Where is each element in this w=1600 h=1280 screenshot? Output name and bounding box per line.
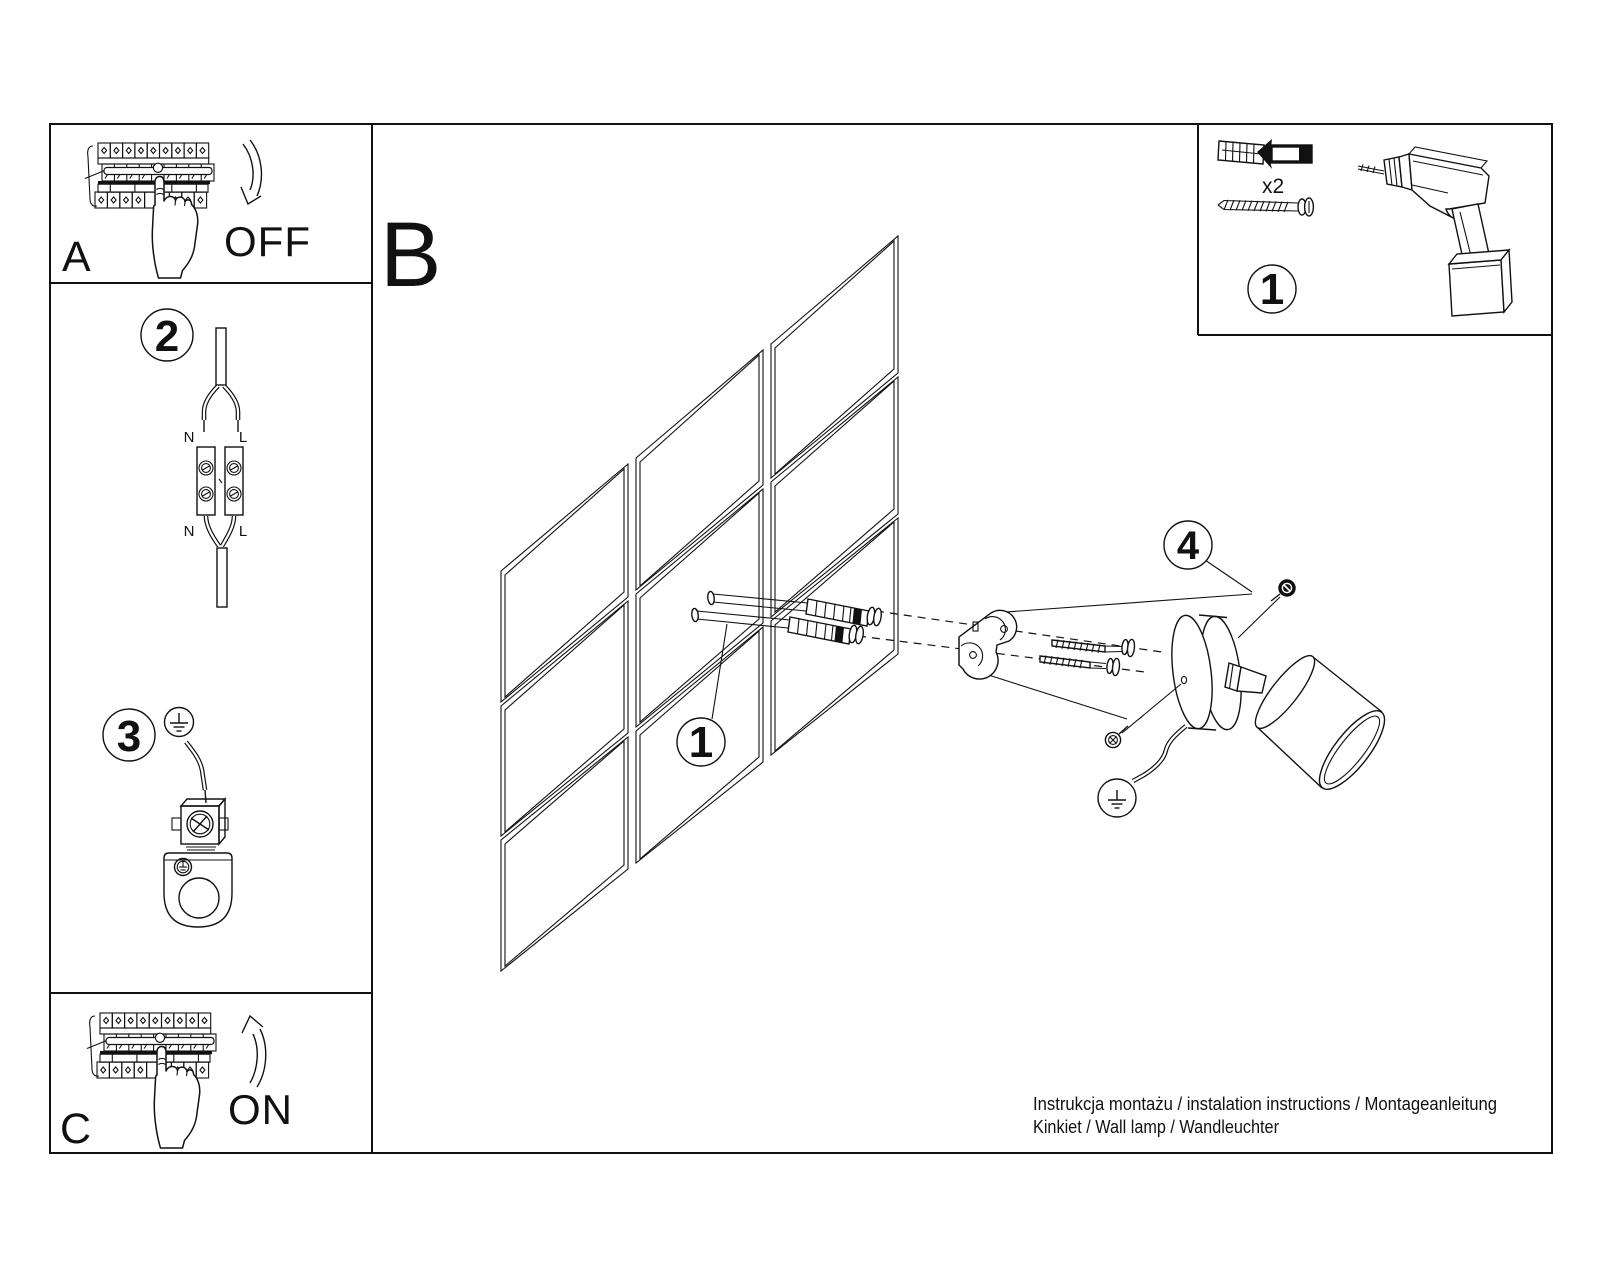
wall-tile: [501, 236, 898, 971]
bracket-screw-icon: [1040, 656, 1120, 676]
step-3-ground: 3: [103, 708, 232, 928]
wall-fixings: 1: [677, 591, 882, 767]
lamp-arm: [1225, 663, 1266, 693]
step-2-wiring: 2 N L N L: [141, 309, 247, 607]
step-1-leader: [712, 624, 727, 719]
drill-icon: [1358, 147, 1512, 316]
quantity-label: x2: [1262, 175, 1284, 198]
section-a: A OFF: [62, 140, 311, 281]
mounting-axis-upper: [876, 611, 1162, 652]
footer-line2: Kinkiet / Wall lamp / Wandleuchter: [1033, 1117, 1279, 1137]
step-2-number: 2: [155, 312, 179, 361]
breaker-panel-icon: [87, 1013, 216, 1148]
section-c: C ON: [60, 1013, 293, 1153]
on-label: ON: [228, 1086, 293, 1133]
section-a-label: A: [62, 233, 91, 281]
canopy-screw-icon: [1105, 726, 1128, 748]
footer-text: Instrukcja montażu / instalation instruc…: [1033, 1094, 1497, 1137]
explode-line-top: [992, 594, 1252, 613]
arrow-down-icon: [241, 140, 261, 204]
wall-lamp: [1098, 613, 1395, 817]
ground-terminal: [172, 799, 228, 850]
wire-n-top-label: N: [184, 429, 195, 446]
wall-panel: [501, 236, 898, 971]
section-b-label: B: [380, 204, 441, 306]
footer-line1: Instrukcja montażu / instalation instruc…: [1033, 1094, 1497, 1114]
instruction-drawing: A OFF B 2 N L N L: [0, 0, 1600, 1280]
ground-symbol-icon: [1098, 779, 1136, 817]
mounting-screw-icon: [707, 591, 808, 611]
parts-box: x2 1: [1218, 139, 1512, 316]
step-4-number: 4: [1177, 524, 1200, 568]
wire-l-bottom-label: L: [239, 523, 247, 540]
arrow-up-icon: [242, 1016, 266, 1087]
section-c-label: C: [60, 1105, 91, 1153]
off-label: OFF: [224, 218, 311, 265]
frame: [50, 124, 1552, 1153]
parts-step-number: 1: [1260, 265, 1284, 314]
lamp-head: [1247, 649, 1395, 799]
bracket-screw-icon: [1052, 639, 1135, 657]
wire-l-top-label: L: [239, 429, 247, 446]
ground-symbol-icon: [165, 708, 194, 737]
insert-arrow-icon: [1257, 139, 1311, 169]
ground-wire: [1133, 726, 1186, 781]
wall-plug-icon: [1218, 139, 1311, 169]
wire-n-bottom-label: N: [184, 523, 195, 540]
step-3-number: 3: [117, 712, 141, 761]
screw-icon: [1218, 198, 1313, 216]
canopy-screw-icon: [1271, 580, 1295, 601]
step-1-number: 1: [689, 718, 713, 767]
terminal-block: [197, 447, 243, 515]
breaker-panel-icon: [85, 143, 214, 278]
instruction-sheet: A OFF B 2 N L N L: [0, 0, 1600, 1280]
wall-bracket: [959, 610, 1017, 679]
lamp-bracket-part: [164, 853, 232, 927]
